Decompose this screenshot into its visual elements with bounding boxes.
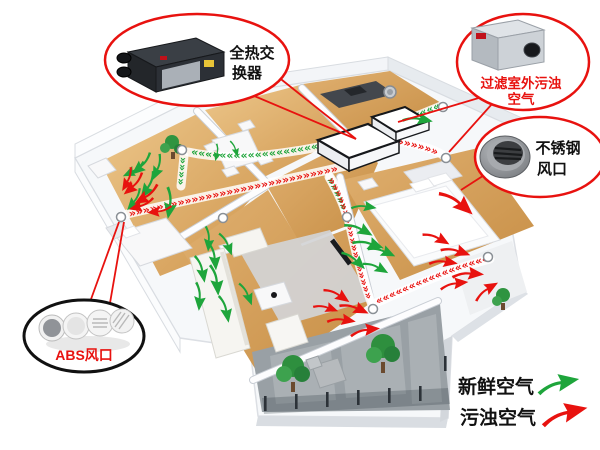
vent (219, 214, 228, 223)
vent (178, 146, 187, 155)
filter-label-line2: 空气 (508, 91, 536, 107)
legend-fresh-arrow-icon (535, 371, 581, 396)
vent (117, 213, 126, 222)
filter-label-line1: 过滤室外污浊 (481, 75, 562, 91)
wall-fan-center (387, 89, 393, 95)
callout-heat-exchanger: 全热交 换器 (105, 14, 289, 106)
heat-exchanger-label-line2: 换器 (232, 64, 263, 82)
table-decor (271, 292, 277, 298)
legend: 新鲜空气 污浊空气 (458, 371, 590, 429)
ventilation-diagram: »»»»»»»»»»»»»»»»»»»» »»»» »»»»» »»»»» »»… (0, 0, 600, 450)
stainless-label-line1: 不锈钢 (535, 139, 580, 157)
legend-fresh-label: 新鲜空气 (458, 375, 534, 398)
heat-exchanger-label-line1: 全热交 (228, 44, 274, 62)
callout-stainless-vent: 不锈钢 风口 (475, 117, 600, 197)
legend-dirty-arrow-icon (538, 398, 589, 427)
house (75, 57, 534, 428)
stainless-label-line2: 风口 (537, 161, 567, 178)
vent (343, 213, 352, 222)
vent (369, 305, 378, 314)
diagram-canvas: »»»»»»»»»»»»»»»»»»»» »»»» »»»»» »»»»» »»… (0, 0, 600, 450)
filter-unit-icon (472, 20, 544, 70)
callout-filter: 过滤室外污浊 空气 (457, 14, 589, 110)
callout-line (90, 222, 119, 302)
vent (484, 253, 493, 262)
vent (442, 154, 451, 163)
abs-vent-label: ABS风口 (55, 347, 113, 363)
stainless-vent-icon (480, 136, 530, 178)
legend-dirty-label: 污浊空气 (460, 406, 536, 429)
callout-abs-vent: ABS风口 (24, 300, 144, 372)
bottom-edge (256, 416, 448, 428)
